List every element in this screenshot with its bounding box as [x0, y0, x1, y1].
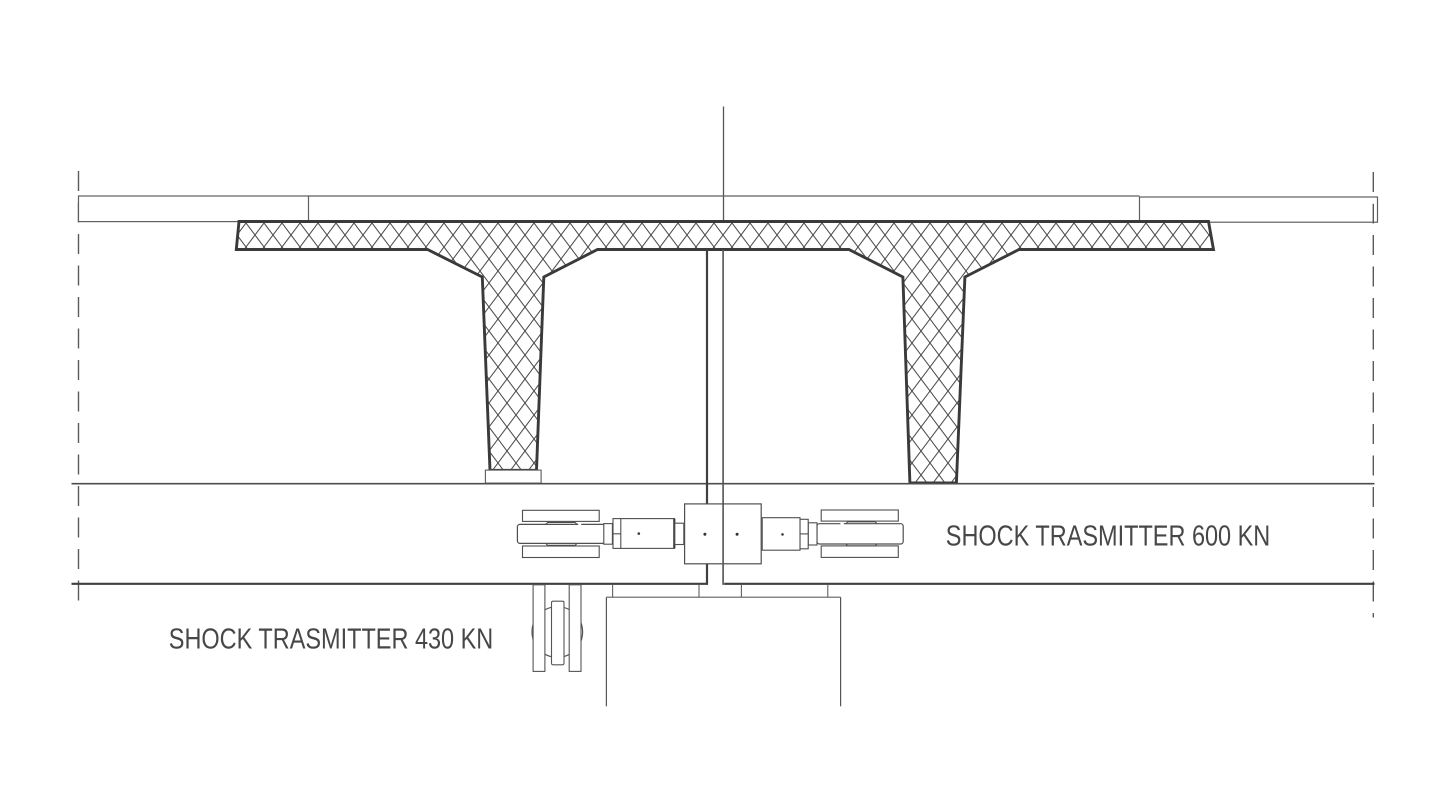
svg-text:SHOCK TRASMITTER 430 KN: SHOCK TRASMITTER 430 KN — [169, 622, 493, 655]
svg-text:SHOCK TRASMITTER 600 KN: SHOCK TRASMITTER 600 KN — [946, 519, 1270, 552]
